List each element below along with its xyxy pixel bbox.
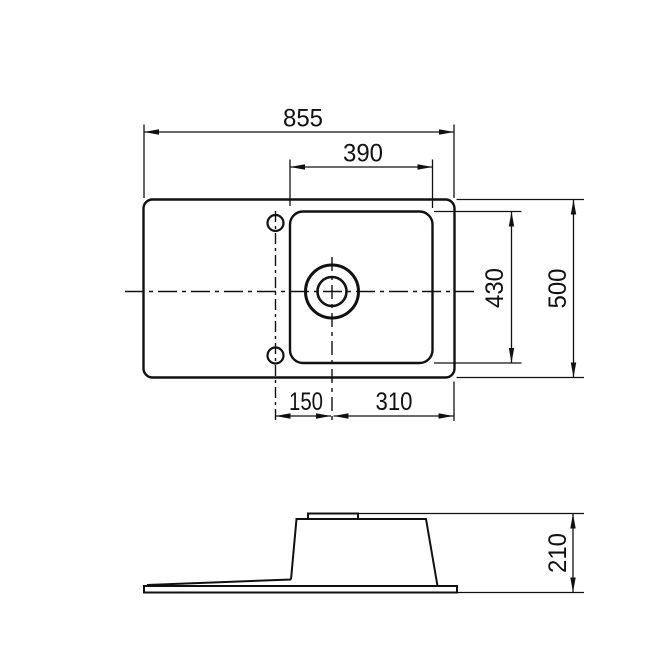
dim-overall-width: 855 [144,105,454,199]
arrowhead-down [570,578,575,593]
arrowhead-left [334,413,349,418]
dim-tap-to-drain: 150 [276,388,332,419]
dim-label-430: 430 [481,268,509,308]
drainboard-slope-line [147,580,291,586]
dim-bowl-length: 430 [434,212,522,364]
arrowhead-up [509,212,514,227]
dim-overall-height: 210 [358,514,584,593]
dim-label-500: 500 [544,269,572,309]
bowl-outline [290,212,433,364]
dim-label-150: 150 [289,388,323,416]
arrowhead-right [418,164,433,169]
bowl-body-profile [291,519,438,586]
top-view: 855 390 430 500 [125,105,584,422]
arrowhead-up [570,514,575,529]
technical-drawing-canvas: 855 390 430 500 [0,0,651,651]
dim-bowl-width: 390 [290,140,433,209]
dim-label-310: 310 [376,388,413,416]
arrowhead-up [571,200,576,215]
arrowhead-down [509,348,514,363]
sink-drawing: 855 390 430 500 [0,0,651,651]
arrowhead-left [144,129,159,134]
dim-label-855: 855 [283,105,323,133]
arrowhead-right [439,413,454,418]
rim-plate [144,586,457,593]
sink-outline [144,200,455,378]
dim-label-210: 210 [544,533,572,573]
arrowhead-down [571,363,576,378]
dim-label-390: 390 [343,140,383,168]
dim-overall-depth: 500 [457,200,585,378]
side-view: 210 [144,514,584,593]
arrowhead-right [439,129,454,134]
arrowhead-left [290,164,305,169]
dim-drain-to-edge: 310 [334,382,455,422]
